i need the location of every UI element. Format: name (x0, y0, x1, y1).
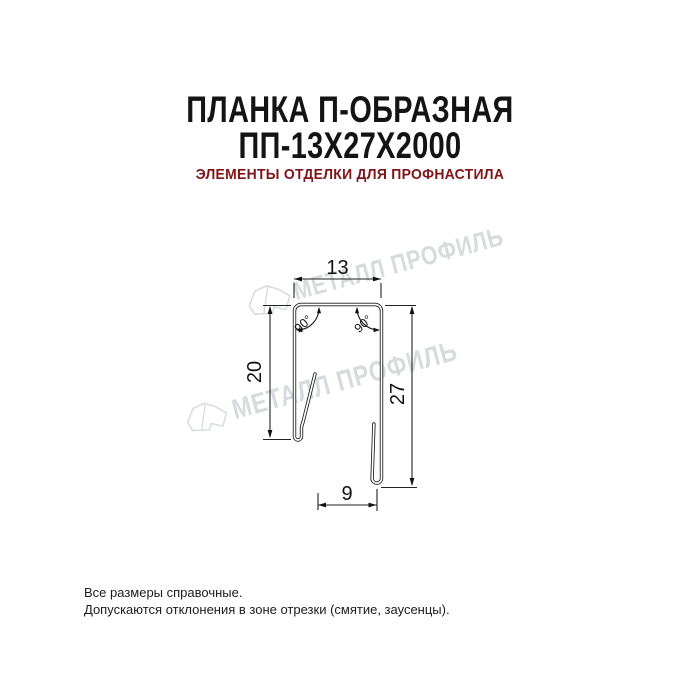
page-header: ПЛАНКА П-ОБРАЗНАЯ ПП-13Х27Х2000 (0, 92, 700, 164)
spec-sheet-page: ПЛАНКА П-ОБРАЗНАЯ ПП-13Х27Х2000 ЭЛЕМЕНТЫ… (0, 0, 700, 700)
dimension-label-left-height: 20 (244, 361, 266, 383)
angle-annotation-left: 90° (292, 307, 321, 336)
page-title: ПЛАНКА П-ОБРАЗНАЯ (77, 92, 623, 128)
watermark-text: МЕТАЛЛ ПРОФИЛЬ (291, 224, 506, 303)
footer-note-1: Все размеры справочные. (84, 584, 450, 601)
watermark-logo-icon (185, 400, 229, 433)
angle-label-left: 90° (292, 313, 315, 336)
page-subtitle: ЭЛЕМЕНТЫ ОТДЕЛКИ ДЛЯ ПРОФНАСТИЛА (25, 166, 676, 183)
dimension-label-bottom-width: 9 (341, 483, 352, 505)
watermark-text: МЕТАЛЛ ПРОФИЛЬ (229, 338, 460, 423)
footer-note-2: Допускаются отклонения в зоне отрезки (с… (84, 601, 450, 618)
dimension-bottom-width: 9 (318, 483, 377, 511)
dimension-label-right-height: 27 (387, 383, 409, 405)
footer-notes: Все размеры справочные. Допускаются откл… (84, 584, 450, 618)
angle-annotation-right: 90° (352, 307, 380, 336)
angle-label-right: 90° (352, 313, 375, 336)
dimension-right-height: 27 (381, 306, 417, 488)
product-code: ПП-13Х27Х2000 (77, 128, 623, 164)
watermark-logo-icon (246, 283, 293, 316)
